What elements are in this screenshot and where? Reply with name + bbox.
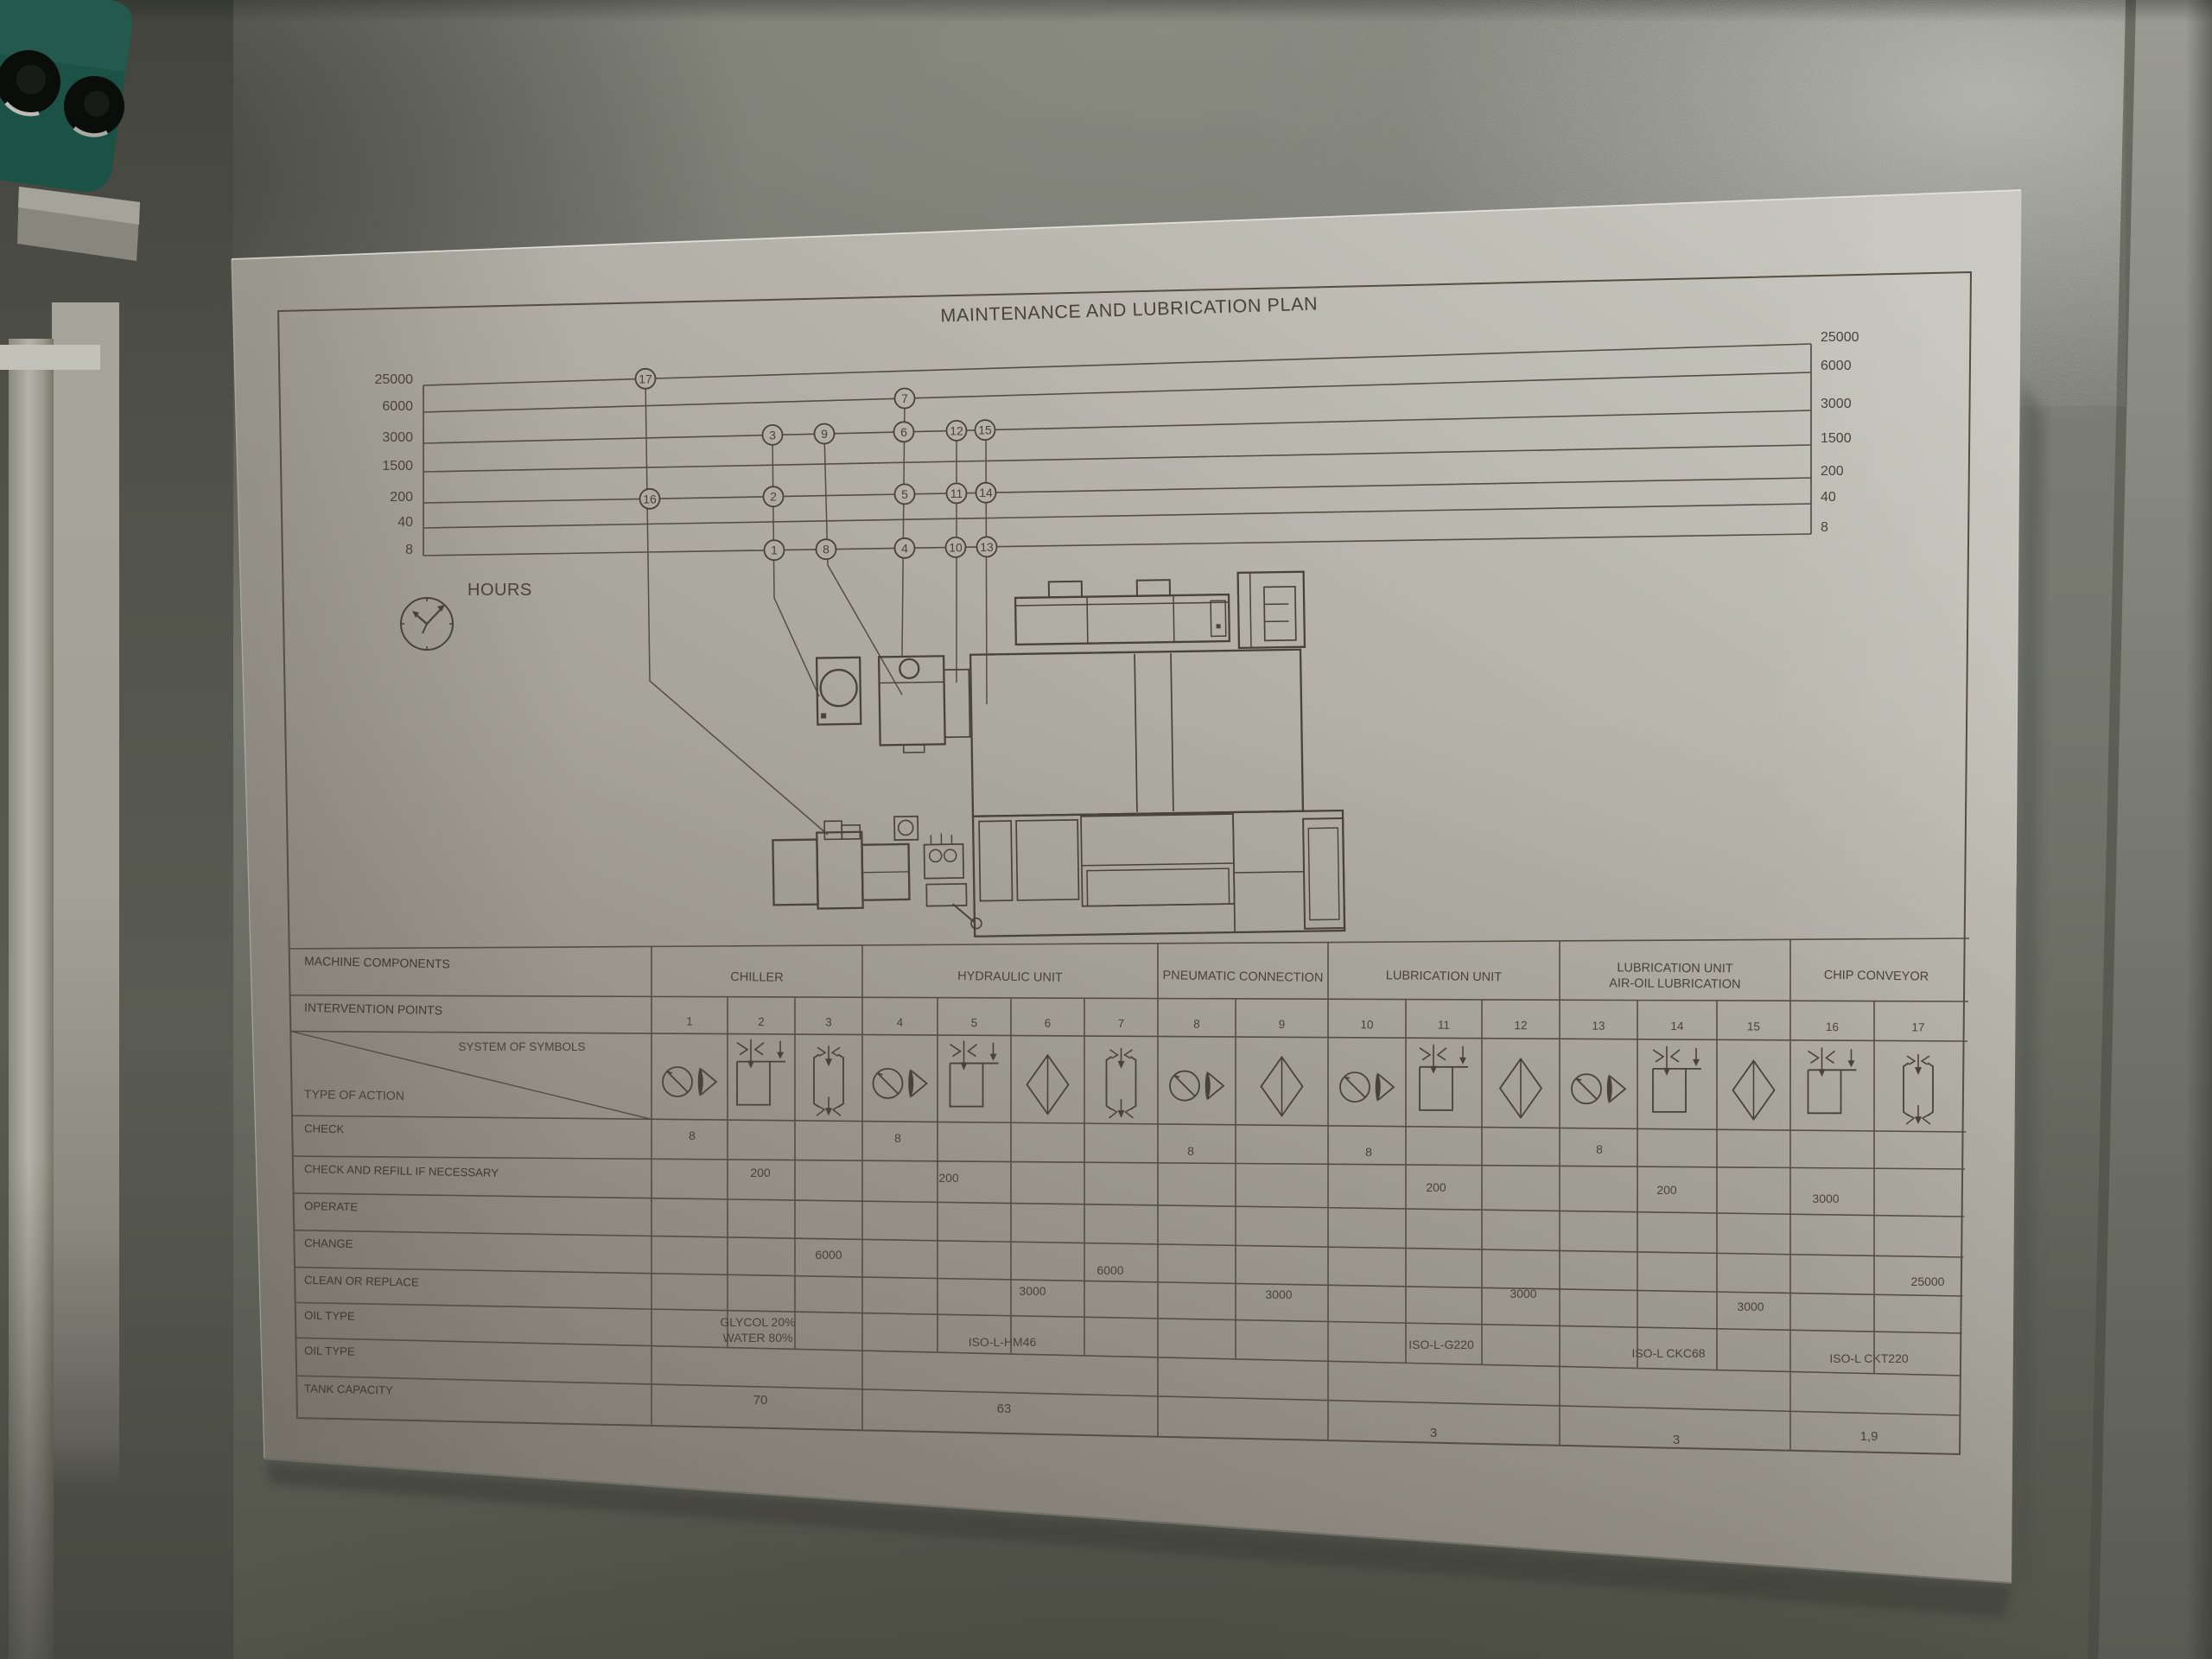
svg-text:13: 13 — [980, 540, 994, 554]
svg-text:6000: 6000 — [815, 1248, 842, 1262]
svg-text:200: 200 — [1821, 464, 1844, 479]
svg-text:AIR-OIL LUBRICATION: AIR-OIL LUBRICATION — [1609, 976, 1740, 991]
svg-text:25000: 25000 — [375, 372, 414, 387]
svg-text:8: 8 — [1187, 1144, 1194, 1158]
svg-text:9: 9 — [1279, 1018, 1286, 1031]
svg-text:1: 1 — [771, 543, 778, 557]
svg-text:200: 200 — [390, 490, 413, 505]
svg-text:40: 40 — [397, 515, 413, 530]
svg-text:200: 200 — [938, 1171, 959, 1185]
svg-text:3000: 3000 — [1265, 1287, 1292, 1301]
svg-text:63: 63 — [997, 1402, 1012, 1416]
svg-text:3000: 3000 — [1821, 397, 1852, 411]
svg-text:10: 10 — [1360, 1018, 1373, 1031]
svg-text:12: 12 — [950, 423, 963, 437]
svg-text:11: 11 — [1438, 1019, 1450, 1032]
svg-text:10: 10 — [949, 540, 963, 554]
svg-text:INTERVENTION POINTS: INTERVENTION POINTS — [304, 1001, 442, 1017]
svg-text:13: 13 — [1592, 1020, 1605, 1033]
svg-text:7: 7 — [1118, 1017, 1125, 1030]
svg-text:70: 70 — [753, 1393, 768, 1408]
svg-text:8: 8 — [1365, 1145, 1372, 1159]
svg-text:3: 3 — [769, 428, 776, 442]
svg-text:6000: 6000 — [382, 399, 413, 414]
svg-text:ISO-L-G220: ISO-L-G220 — [1408, 1338, 1474, 1351]
svg-text:7: 7 — [901, 391, 908, 405]
svg-text:8: 8 — [1193, 1017, 1200, 1030]
svg-text:17: 17 — [1911, 1020, 1924, 1033]
svg-text:15: 15 — [978, 423, 992, 437]
svg-text:1: 1 — [686, 1015, 693, 1028]
svg-text:GLYCOL 20%: GLYCOL 20% — [720, 1315, 795, 1329]
svg-text:CHIP CONVEYOR: CHIP CONVEYOR — [1824, 969, 1929, 984]
svg-text:200: 200 — [750, 1166, 771, 1179]
svg-text:14: 14 — [979, 486, 993, 499]
svg-text:LUBRICATION UNIT: LUBRICATION UNIT — [1386, 969, 1503, 984]
svg-text:200: 200 — [1426, 1180, 1446, 1194]
svg-text:25000: 25000 — [1911, 1274, 1945, 1288]
svg-text:5: 5 — [901, 487, 908, 501]
svg-text:2: 2 — [758, 1015, 765, 1028]
svg-text:HOURS: HOURS — [467, 581, 532, 600]
svg-text:LUBRICATION UNIT: LUBRICATION UNIT — [1617, 961, 1733, 976]
svg-text:200: 200 — [1656, 1183, 1677, 1197]
svg-text:OPERATE: OPERATE — [304, 1199, 359, 1213]
svg-text:1500: 1500 — [382, 459, 413, 474]
svg-text:4: 4 — [897, 1016, 904, 1029]
svg-text:ISO-L CKT220: ISO-L CKT220 — [1829, 1351, 1909, 1365]
svg-text:3000: 3000 — [1737, 1300, 1764, 1313]
svg-text:8: 8 — [894, 1131, 901, 1145]
svg-text:8: 8 — [689, 1128, 696, 1142]
svg-text:3000: 3000 — [1812, 1192, 1839, 1205]
svg-text:2: 2 — [770, 490, 777, 504]
svg-text:12: 12 — [1514, 1019, 1527, 1032]
svg-text:8: 8 — [1596, 1142, 1603, 1156]
svg-text:1,9: 1,9 — [1860, 1429, 1878, 1444]
svg-text:6: 6 — [1045, 1017, 1052, 1030]
svg-text:5: 5 — [971, 1016, 978, 1029]
svg-text:HYDRAULIC UNIT: HYDRAULIC UNIT — [957, 969, 1063, 985]
svg-text:6000: 6000 — [1096, 1263, 1123, 1277]
svg-text:4: 4 — [901, 541, 908, 555]
svg-text:14: 14 — [1670, 1020, 1684, 1033]
svg-text:8: 8 — [405, 543, 413, 557]
svg-text:CHANGE: CHANGE — [304, 1236, 353, 1250]
svg-text:WATER 80%: WATER 80% — [723, 1331, 793, 1344]
svg-text:OIL TYPE: OIL TYPE — [304, 1344, 355, 1358]
svg-text:16: 16 — [643, 492, 657, 505]
svg-text:OIL TYPE: OIL TYPE — [304, 1309, 355, 1323]
svg-text:25000: 25000 — [1821, 330, 1859, 345]
svg-text:3: 3 — [825, 1015, 832, 1028]
svg-text:TYPE OF ACTION: TYPE OF ACTION — [304, 1087, 404, 1103]
svg-text:8: 8 — [1821, 520, 1828, 535]
svg-text:6: 6 — [900, 425, 907, 439]
svg-text:SYSTEM OF SYMBOLS: SYSTEM OF SYMBOLS — [458, 1040, 585, 1053]
svg-text:ISO-L-HM46: ISO-L-HM46 — [969, 1335, 1037, 1349]
svg-text:16: 16 — [1826, 1020, 1839, 1033]
svg-text:3000: 3000 — [1019, 1284, 1046, 1298]
svg-text:CHILLER: CHILLER — [730, 970, 783, 985]
svg-text:TANK CAPACITY: TANK CAPACITY — [304, 1382, 393, 1396]
svg-text:15: 15 — [1747, 1020, 1760, 1033]
svg-text:ISO-L CKC68: ISO-L CKC68 — [1631, 1346, 1705, 1360]
svg-text:11: 11 — [950, 486, 963, 500]
svg-text:9: 9 — [821, 427, 828, 441]
svg-text:3: 3 — [1430, 1426, 1437, 1440]
svg-text:17: 17 — [639, 372, 652, 385]
svg-text:3000: 3000 — [1510, 1287, 1536, 1300]
svg-text:1500: 1500 — [1821, 431, 1852, 446]
svg-text:PNEUMATIC CONNECTION: PNEUMATIC CONNECTION — [1162, 969, 1323, 985]
svg-text:CHECK: CHECK — [304, 1122, 345, 1135]
svg-text:8: 8 — [823, 543, 829, 556]
svg-text:40: 40 — [1821, 490, 1836, 505]
svg-text:3: 3 — [1673, 1433, 1680, 1447]
svg-text:6000: 6000 — [1821, 359, 1852, 373]
svg-text:CLEAN OR REPLACE: CLEAN OR REPLACE — [304, 1274, 419, 1289]
svg-text:3000: 3000 — [382, 430, 413, 445]
